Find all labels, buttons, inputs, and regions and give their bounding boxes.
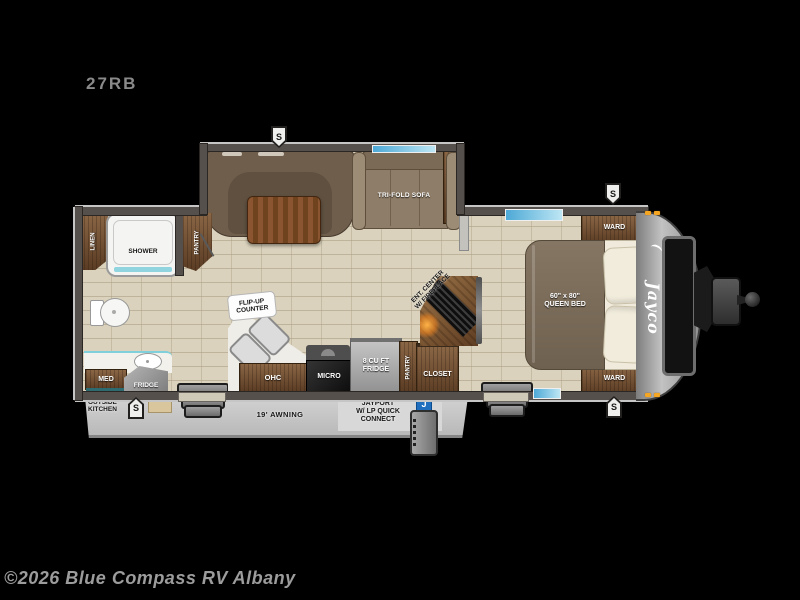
marker-light-3 bbox=[645, 393, 651, 397]
kitchen-fridge-line2: FRIDGE bbox=[363, 366, 389, 373]
bedroom-window-top bbox=[505, 209, 563, 221]
entry-steps-bedroom-3 bbox=[489, 404, 525, 417]
microwave: MICRO bbox=[306, 360, 352, 394]
entry-steps-main-3 bbox=[184, 405, 222, 418]
slide-window bbox=[372, 145, 436, 153]
marker-light bbox=[645, 211, 651, 215]
marker-light-4 bbox=[654, 393, 660, 397]
jayco-logo-text: Jayco bbox=[644, 282, 663, 335]
sofa-armrest-left bbox=[352, 152, 366, 230]
wall-rear bbox=[75, 207, 82, 400]
front-cap-window bbox=[662, 236, 696, 376]
speaker-letter: S bbox=[133, 403, 139, 413]
shower-pan-outline bbox=[113, 220, 173, 265]
range-vent bbox=[321, 349, 335, 356]
shower-label: SHOWER bbox=[108, 248, 178, 255]
jayport-accessory-hinge bbox=[413, 416, 416, 446]
wall-top-rear bbox=[75, 207, 206, 215]
slide-wall-right bbox=[457, 144, 464, 214]
jayport-label: JAYPORT W/ LP QUICK CONNECT bbox=[336, 400, 420, 424]
floorplan-image: 27RB 19' AWNING OUTSIDE KITCHEN JAYPORT … bbox=[0, 0, 800, 600]
bedroom-wall-stub bbox=[459, 213, 469, 251]
tv-bar bbox=[476, 277, 482, 344]
wall-bottom bbox=[75, 392, 648, 400]
bed-type-label: QUEEN BED bbox=[544, 301, 586, 308]
speaker-letter: S bbox=[610, 189, 616, 199]
entry-door-bedroom bbox=[483, 392, 529, 402]
speaker-letter: S bbox=[611, 402, 617, 412]
outside-kitchen-line2: KITCHEN bbox=[88, 406, 117, 413]
dinette-headrest bbox=[222, 152, 242, 156]
jayport-line2: W/ LP QUICK bbox=[356, 408, 400, 415]
dinette-headrest-2 bbox=[258, 152, 284, 156]
bed-size-label: 60" x 80" bbox=[550, 293, 580, 300]
outside-fridge-label: FRIDGE bbox=[124, 382, 168, 389]
linen-cabinet: LINEN bbox=[80, 213, 108, 270]
shower-glass-door bbox=[114, 267, 172, 272]
ohc-cabinet: OHC bbox=[240, 364, 306, 392]
jayport-line3: CONNECT bbox=[361, 416, 396, 423]
speaker-icon-bedroom-top: S bbox=[605, 183, 621, 205]
kitchen-fridge-line1: 8 CU FT bbox=[363, 358, 389, 365]
toilet-bowl bbox=[100, 298, 130, 327]
micro-label: MICRO bbox=[317, 373, 340, 380]
jayport-accessory bbox=[410, 410, 438, 456]
outside-kitchen-label: OUTSIDE KITCHEN bbox=[88, 399, 132, 414]
hitch-ball bbox=[745, 292, 760, 307]
awning-label: 19' AWNING bbox=[238, 411, 322, 420]
bath-wall-divider bbox=[176, 213, 183, 275]
dinette-table bbox=[247, 196, 321, 244]
bed-label: 60" x 80" QUEEN BED bbox=[527, 293, 603, 309]
outside-kitchen-line1: OUTSIDE bbox=[88, 399, 117, 406]
sofa-label: TRI-FOLD SOFA bbox=[358, 192, 450, 199]
linen-label: LINEN bbox=[91, 232, 98, 250]
slide-wall-left bbox=[200, 144, 207, 214]
med-cabinet: MED bbox=[86, 370, 126, 389]
jayport-line1: JAYPORT bbox=[362, 400, 394, 407]
toilet-flush-dot bbox=[112, 310, 116, 314]
marker-light-2 bbox=[654, 211, 660, 215]
closet-label: CLOSET bbox=[417, 371, 458, 379]
kitchen-fridge: 8 CU FT FRIDGE bbox=[350, 338, 402, 397]
flip-up-counter-tag: FLIP-UP COUNTER bbox=[228, 292, 276, 321]
model-number: 27RB bbox=[86, 74, 137, 94]
hitch-coupler bbox=[711, 277, 741, 326]
entry-door-main bbox=[178, 392, 226, 402]
ohc-label: OHC bbox=[265, 373, 282, 382]
kitchen-pantry: PANTRY bbox=[400, 342, 417, 392]
speaker-letter: S bbox=[276, 132, 282, 142]
shower: SHOWER bbox=[106, 213, 180, 277]
med-label: MED bbox=[98, 376, 114, 383]
watermark: ©2026 Blue Compass RV Albany bbox=[4, 568, 296, 589]
bedroom-window-bottom bbox=[533, 388, 561, 399]
jayco-logo: Jayco bbox=[642, 258, 664, 358]
kitchen-pantry-label: PANTRY bbox=[405, 355, 412, 379]
closet: CLOSET bbox=[417, 344, 458, 395]
bath-sink-drain bbox=[146, 360, 149, 363]
